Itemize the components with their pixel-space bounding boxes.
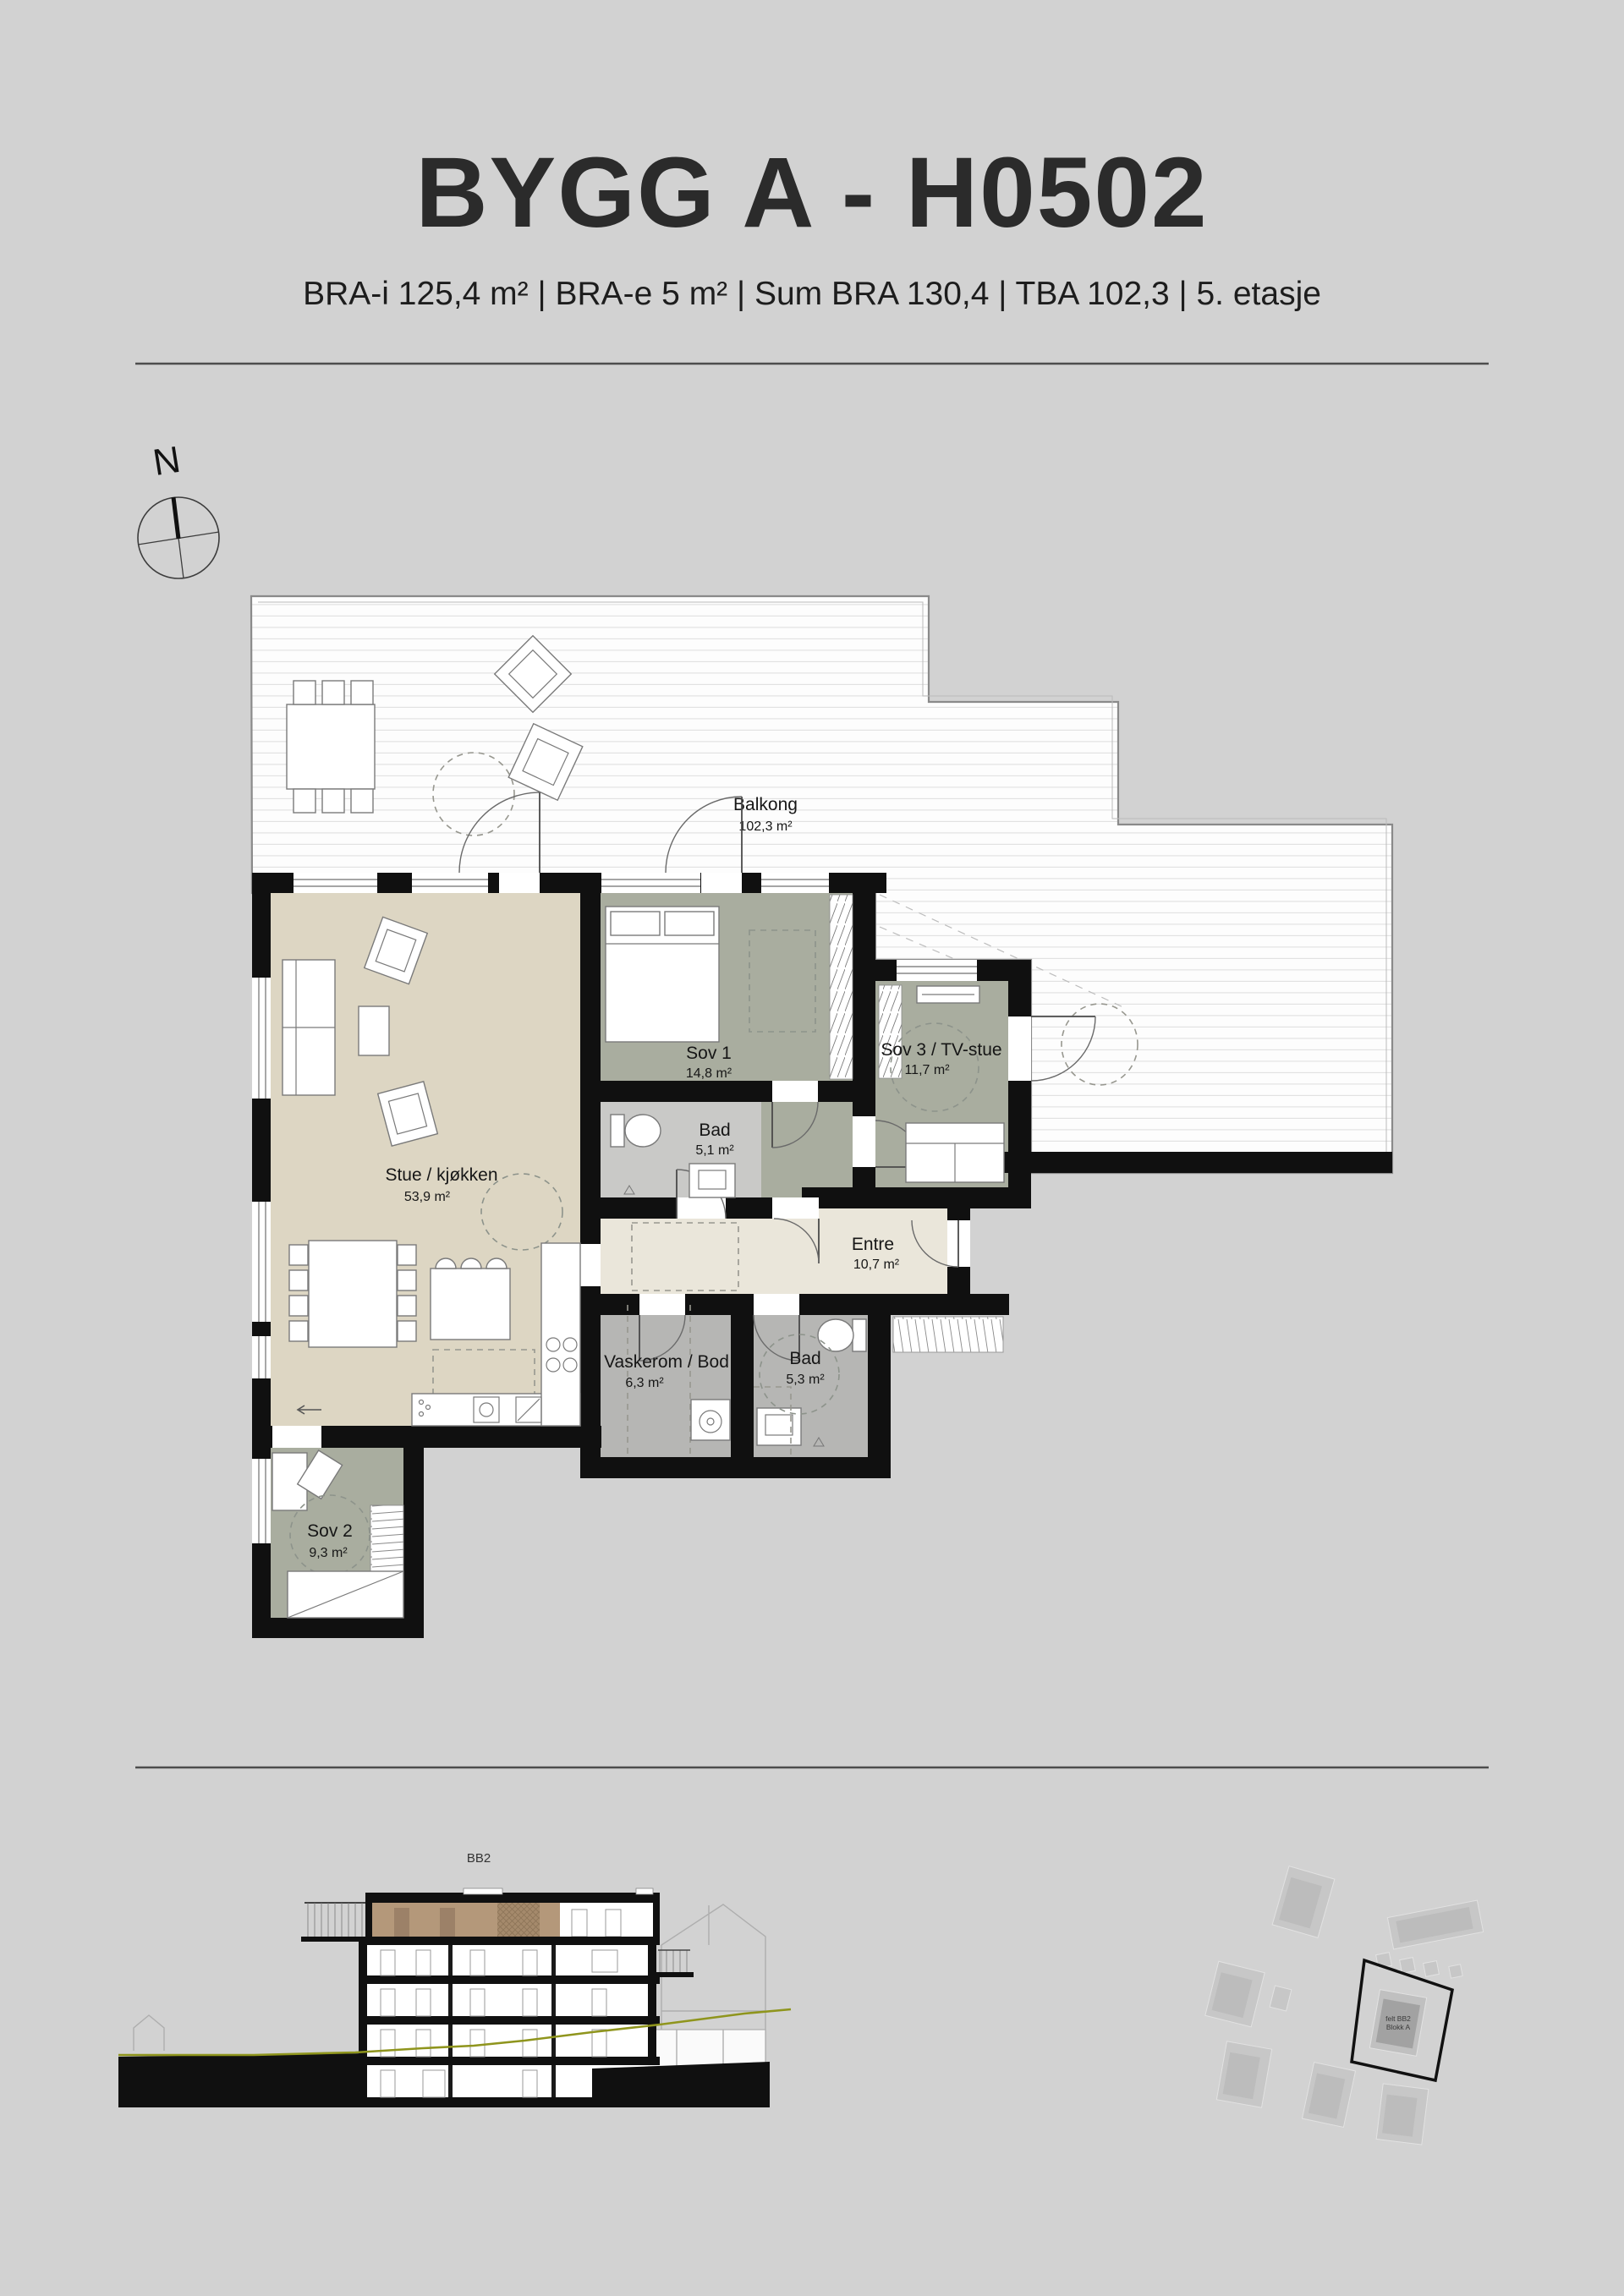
label-bad2: Bad (789, 1349, 820, 1368)
area-sov1: 14,8 m² (686, 1066, 732, 1081)
sheet-canvas: BYGG A - H0502 BRA-i 125,4 m² | BRA-e 5 … (0, 0, 1624, 2296)
area-vaskerom: 6,3 m² (625, 1376, 664, 1390)
background-house-left (134, 2015, 164, 2051)
site-label-line2: Blokk A (1386, 2023, 1411, 2031)
area-stue: 53,9 m² (404, 1190, 451, 1204)
sov2-stair-hatch (370, 1505, 403, 1575)
site-plan: felt BB2 Blokk A (1205, 1866, 1484, 2145)
north-needle-icon (173, 497, 178, 539)
north-compass: N (138, 439, 219, 578)
room-vaskerom (590, 1305, 738, 1467)
room-label-balkong: Balkong (733, 795, 798, 814)
building-section: BB2 (118, 1851, 791, 2107)
ground-mass-left (118, 2053, 365, 2107)
section-label: BB2 (467, 1851, 491, 1866)
label-vaskerom: Vaskerom / Bod (604, 1352, 729, 1372)
label-sov1: Sov 1 (686, 1044, 732, 1063)
toilet-icon (625, 1115, 661, 1147)
site-building-b (1376, 2084, 1429, 2145)
label-sov2: Sov 2 (307, 1521, 353, 1541)
header: BYGG A - H0502 BRA-i 125,4 m² | BRA-e 5 … (135, 137, 1489, 364)
dining-table (309, 1241, 397, 1347)
area-entre: 10,7 m² (853, 1258, 900, 1272)
area-bad2: 5,3 m² (786, 1373, 825, 1387)
site-building-e (1205, 1961, 1265, 2027)
washer-icon (691, 1400, 730, 1440)
toilet2-icon (818, 1319, 853, 1351)
label-bad1: Bad (699, 1121, 730, 1140)
area-summary: BRA-i 125,4 m² | BRA-e 5 m² | Sum BRA 13… (303, 276, 1321, 312)
area-sov3: 11,7 m² (904, 1063, 950, 1077)
ground-mass-right (592, 2062, 770, 2107)
site-building-d (1216, 2041, 1271, 2107)
site-label-line1: felt BB2 (1385, 2014, 1411, 2023)
label-entre: Entre (852, 1235, 894, 1254)
north-label: N (151, 439, 184, 484)
area-bad1: 5,1 m² (695, 1143, 734, 1158)
page-title: BYGG A - H0502 (415, 137, 1208, 249)
deck-dining-set (287, 681, 375, 813)
room-bad-5-1 (590, 1091, 776, 1208)
site-building-f (1272, 1866, 1335, 1938)
sink-icon (689, 1164, 735, 1197)
kitchen-island (431, 1269, 510, 1340)
site-small-blocks (1376, 1953, 1463, 1979)
label-stue: Stue / kjøkken (385, 1165, 497, 1185)
area-sov2: 9,3 m² (309, 1546, 348, 1560)
entrance-grate (893, 1317, 1003, 1352)
wardrobe-hatch (830, 895, 853, 1079)
label-sov3: Sov 3 / TV-stue (881, 1040, 1001, 1060)
site-building-c (1302, 2063, 1355, 2128)
site-building-row (1387, 1900, 1483, 1949)
room-area-balkong: 102,3 m² (738, 819, 793, 834)
kitchen-counter-leg (541, 1243, 580, 1426)
floorplan-sheet: BYGG A - H0502 BRA-i 125,4 m² | BRA-e 5 … (0, 0, 1624, 2296)
